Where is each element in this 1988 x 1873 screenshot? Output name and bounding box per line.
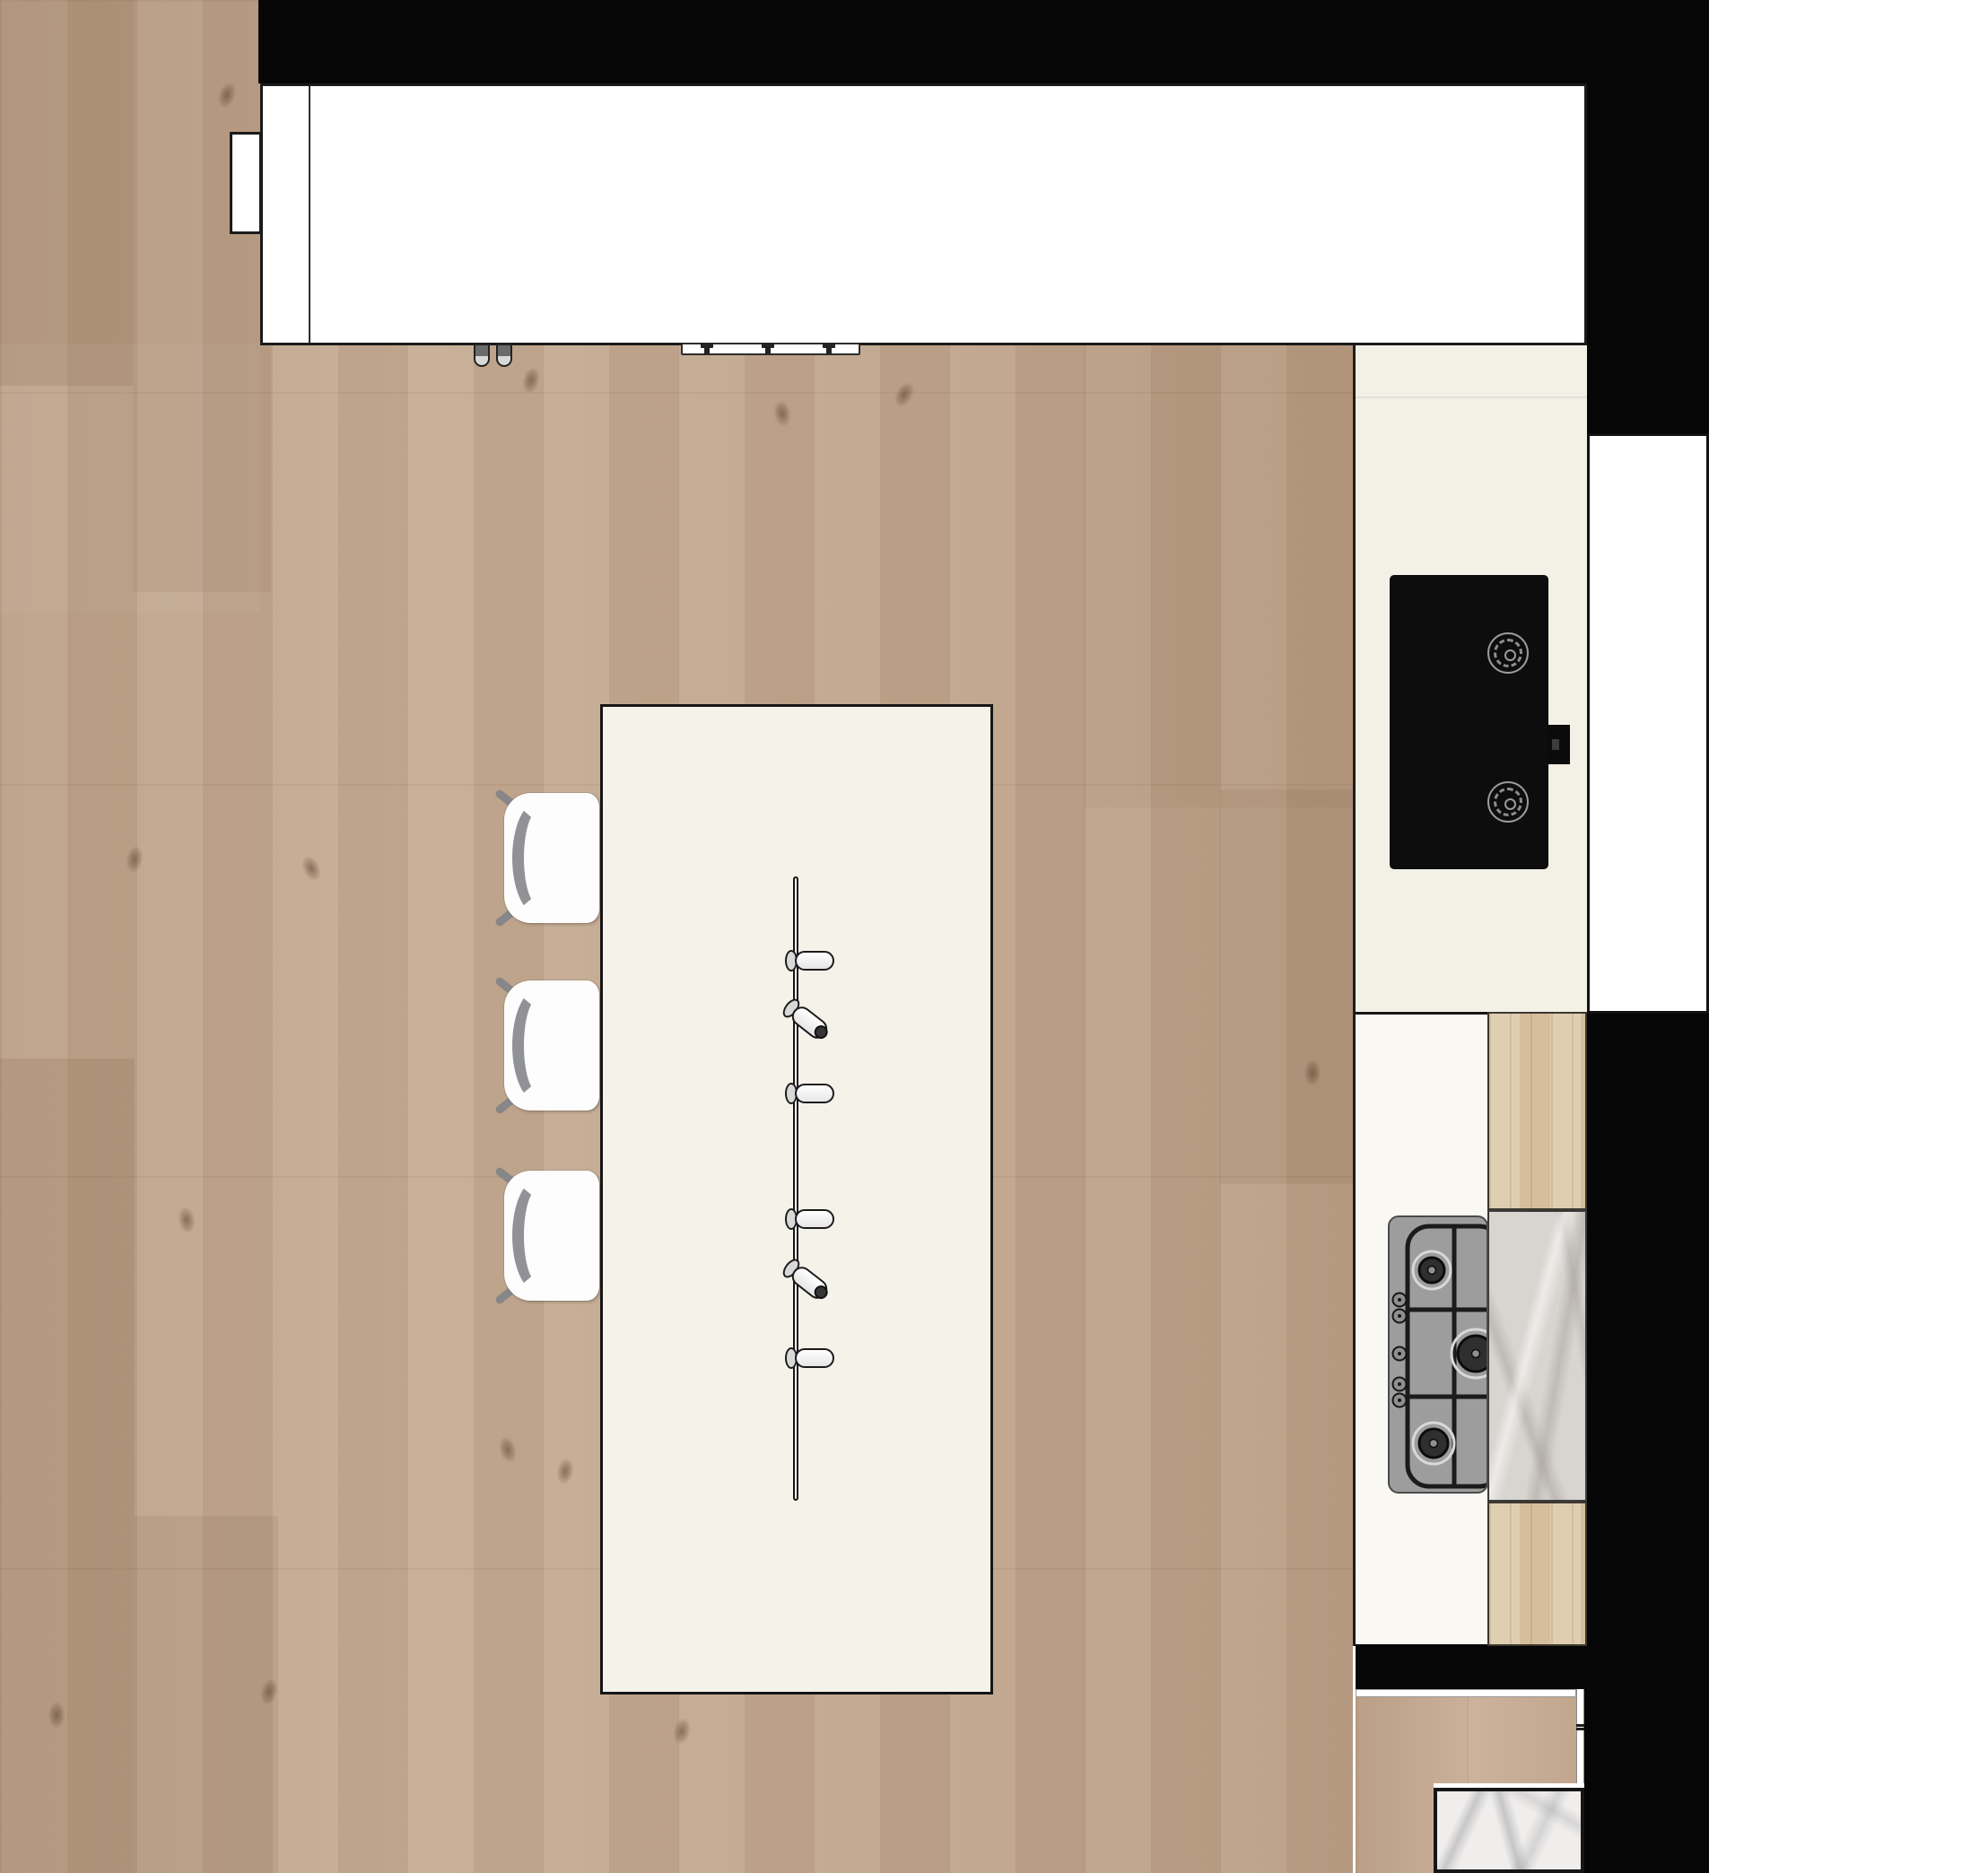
bar-stool[interactable] (499, 1167, 599, 1304)
handle-mount-clip-icon (762, 343, 774, 348)
window-opening[interactable] (1587, 433, 1709, 1014)
wall-bottom-right-block (1583, 1644, 1709, 1873)
faucet-handle-icon[interactable] (474, 344, 490, 367)
door-hinge-mark (1576, 1728, 1584, 1730)
induction-burner-icon (1487, 781, 1529, 823)
door-jamb-strip (1576, 1689, 1584, 1793)
gas-hob[interactable] (1388, 1215, 1488, 1494)
spotlight-body-icon (795, 1348, 834, 1368)
bar-stool[interactable] (499, 789, 599, 927)
counter-marble-insert (1487, 1210, 1587, 1502)
spotlight-body-icon (795, 951, 834, 971)
track-light-spot[interactable] (785, 1347, 837, 1369)
doorway-threshold (1356, 1689, 1576, 1697)
wood-knot-mark (1301, 1054, 1324, 1092)
wall-bottom-band (1356, 1644, 1583, 1691)
wood-knot-mark (551, 1450, 580, 1492)
oven-handle[interactable] (681, 343, 860, 355)
door-hinge-mark (1576, 1724, 1584, 1727)
wall-right-mid (1587, 1012, 1709, 1646)
floorplan-canvas (0, 0, 1988, 1873)
wood-knot-mark (292, 846, 329, 890)
track-light-spot[interactable] (785, 1208, 837, 1230)
stool-seat (504, 1171, 599, 1301)
handle-mount-clip-icon (701, 343, 713, 348)
wood-knot-mark (515, 359, 547, 401)
spotlight-body-icon (795, 1084, 834, 1103)
wood-knot-mark (45, 1696, 68, 1734)
stool-seat (504, 793, 599, 923)
wood-knot-mark (253, 1670, 285, 1712)
spotlight-body-icon (795, 1209, 834, 1229)
floor-tone-patch (135, 1516, 278, 1873)
wood-knot-mark (667, 1711, 697, 1752)
stool-seat (504, 980, 599, 1111)
wood-knot-mark (120, 839, 150, 880)
cabinet-divider-line (309, 86, 310, 343)
wood-knot-mark (768, 393, 798, 434)
stool-backrest (512, 989, 564, 1102)
track-light-spot[interactable] (785, 950, 837, 971)
track-light-spot[interactable] (785, 1083, 837, 1104)
wall-top (258, 0, 1709, 83)
faucet-handle-icon[interactable] (496, 344, 512, 367)
floor-tone-patch (0, 1058, 135, 1873)
top-counter-run[interactable] (260, 83, 1587, 345)
wall-right-upper (1587, 83, 1709, 435)
sink-faucet[interactable] (474, 344, 515, 367)
floor-tone-patch (0, 344, 260, 613)
bar-stool[interactable] (499, 977, 599, 1114)
wood-knot-mark (492, 1428, 524, 1470)
floor-tone-patch (0, 0, 133, 386)
marble-console[interactable] (1434, 1788, 1584, 1873)
wood-knot-mark (210, 74, 245, 117)
stool-backrest (512, 1179, 564, 1293)
induction-cooktop[interactable] (1390, 575, 1548, 869)
counter-left-notch (230, 132, 262, 234)
cooktop-control-knob[interactable] (1547, 725, 1570, 764)
counter-seam-line (1356, 396, 1587, 398)
wood-knot-mark (885, 372, 924, 416)
counter-wood-insert-top (1487, 1012, 1587, 1210)
floor-tone-patch (1084, 344, 1353, 807)
stool-backrest (512, 801, 564, 915)
counter-wood-insert-bottom (1487, 1502, 1587, 1646)
handle-mount-clip-icon (823, 343, 835, 348)
floor-tone-patch (133, 0, 271, 592)
induction-burner-icon (1487, 632, 1529, 674)
wood-knot-mark (172, 1199, 202, 1241)
floor-tone-patch (1220, 789, 1353, 1184)
gas-hob-grate-icon (1390, 1217, 1488, 1494)
